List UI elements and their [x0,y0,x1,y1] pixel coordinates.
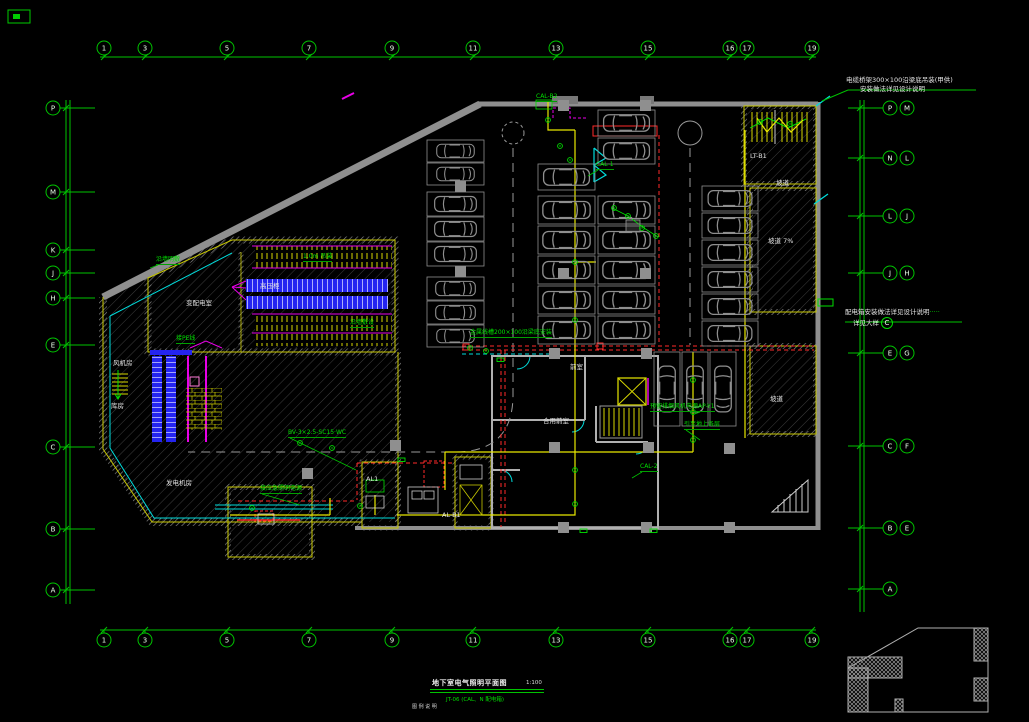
svg-text:13: 13 [552,45,561,53]
structural-column [455,266,466,277]
parking-stall [427,192,484,216]
svg-text:N: N [887,155,892,163]
parking-stall [427,301,484,324]
car-icon [604,115,650,132]
parking-stall [427,140,484,162]
grid-bubble-top: 1 [97,41,111,55]
grid-bubble-bottom: 16 [723,633,737,647]
parking-stall [427,277,484,300]
annotation-line: 安装做法详见设计说明 [860,85,925,93]
svg-text:K: K [51,247,56,255]
car-icon [603,321,650,338]
structural-column [549,348,560,359]
grid-bubble-top: 17 [740,41,754,55]
svg-text:J: J [51,270,54,278]
grid-bubble-right: C [883,439,897,453]
car-icon [435,222,477,237]
structural-column [643,442,654,453]
parking-stall [598,138,655,164]
svg-text:5: 5 [225,637,229,645]
svg-text:J: J [905,213,908,221]
grid-bubble-bottom: 1 [97,633,111,647]
svg-text:M: M [50,189,56,197]
title-sub: 图 例 说 明 [412,703,437,710]
parking-stall [710,352,736,426]
leader-line [632,472,642,478]
grid-bubble-bottom: 7 [302,633,316,647]
car-icon [543,321,590,338]
car-icon [436,305,476,319]
grid-bubble-left: C [46,440,60,454]
floor-plan-svg: 1357911131516171913579111315161719PMKJHE… [0,0,1029,722]
svg-text:B: B [888,525,893,533]
car-icon [543,291,590,308]
svg-text:H: H [904,270,909,278]
car-icon [435,197,477,212]
grid-bubble-top: 7 [302,41,316,55]
svg-text:A: A [888,586,893,594]
svg-text:11: 11 [469,637,478,645]
parking-stall [538,164,595,190]
svg-text:16: 16 [726,637,735,645]
structural-column [558,522,569,533]
grid-bubble-top: 3 [138,41,152,55]
svg-text:L: L [888,213,892,221]
grid-bubble-right: J [883,266,897,280]
structural-column [641,348,652,359]
svg-text:J: J [888,270,891,278]
grid-bubble-bottom: 17 [740,633,754,647]
key-plan [848,628,988,712]
parking-stall [682,352,708,426]
annotation-top-right: 电缆桥架300×100沿梁底吊装(甲供) 安装做法详见设计说明 [846,76,1021,94]
parking-stall [702,321,758,346]
car-icon [437,167,475,181]
grid-bubble-left: A [46,583,60,597]
car-icon [659,366,676,412]
parking-stall [427,217,484,241]
grid-bubble-right: E [883,346,897,360]
car-icon [603,201,650,218]
svg-text:13: 13 [552,637,561,645]
svg-text:G: G [904,350,909,358]
grid-bubble-right: M [900,101,914,115]
svg-text:15: 15 [644,637,653,645]
svg-text:9: 9 [390,637,394,645]
parking-stall [598,286,655,314]
svg-text:19: 19 [808,45,817,53]
grid-bubble-left: K [46,243,60,257]
car-icon [436,281,476,295]
structural-column [724,522,735,533]
structural-column [302,468,313,479]
svg-text:16: 16 [726,45,735,53]
grid-bubble-top: 16 [723,41,737,55]
parking-stall [538,316,595,344]
svg-text:P: P [888,105,892,113]
car-icon [437,329,475,343]
svg-text:9: 9 [390,45,394,53]
grid-bubble-right: P [883,101,897,115]
title-note: JT-06 (CAL、N 配电箱) [446,695,504,703]
annotation-line: 配电箱安装做法详见设计说明 [845,308,930,316]
svg-text:M: M [904,105,910,113]
svg-text:5: 5 [225,45,229,53]
grid-bubble-left: J [46,266,60,280]
svg-text:B: B [51,526,56,534]
parking-stall [427,325,484,347]
grid-bubble-right: N [883,151,897,165]
grid-bubble-right: L [883,209,897,223]
structural-column [640,100,651,111]
car-icon [435,247,477,262]
structural-column [640,268,651,279]
grid-bubble-top: 19 [805,41,819,55]
parking-stall [427,242,484,266]
grid-bubble-right: B [883,521,897,535]
svg-text:E: E [51,342,55,350]
grid-bubble-top: 15 [641,41,655,55]
grid-bubble-left: B [46,522,60,536]
grid-bubble-left: P [46,101,60,115]
parking-stall [598,110,655,136]
cad-drawing-canvas[interactable]: 1357911131516171913579111315161719PMKJHE… [0,0,1029,722]
svg-text:3: 3 [143,45,147,53]
structural-column [558,100,569,111]
annotation-mid-right: 配电箱安装做法详见设计说明····· 详见大样C [845,308,1005,329]
grid-bubble-bottom: 9 [385,633,399,647]
grid-bubble-bottom: 15 [641,633,655,647]
grid-bubble-right: G [900,346,914,360]
structural-column [455,181,466,192]
title-underline [430,692,544,693]
structural-column [558,268,569,279]
drawing-scale: 1:100 [526,680,542,686]
light-fixture-icon [568,158,573,163]
car-icon [543,201,590,218]
structural-column [724,443,735,454]
parking-stall [598,316,655,344]
svg-text:17: 17 [743,637,752,645]
hatch-areas [103,108,816,557]
parking-stall [538,226,595,254]
parking-layer [427,110,758,426]
svg-text:E: E [905,525,909,533]
svg-text:1: 1 [102,637,106,645]
grid-bubble-left: H [46,291,60,305]
car-icon [437,144,475,158]
car-icon [544,169,590,186]
svg-text:P: P [51,105,55,113]
detail-ref-bubble: C [881,317,893,329]
svg-text:C: C [51,444,56,452]
svg-text:7: 7 [307,637,311,645]
svg-text:H: H [50,295,55,303]
car-icon [604,143,650,160]
car-icon [687,366,704,412]
light-fixture-icon [654,234,659,239]
svg-text:3: 3 [143,637,147,645]
car-icon [603,291,650,308]
grid-bubble-right: L [900,151,914,165]
car-icon [715,366,732,412]
grid-bubble-top: 13 [549,41,563,55]
grid-bubble-right: A [883,582,897,596]
grid-bubble-top: 11 [466,41,480,55]
grid-bubble-right: E [900,521,914,535]
grid-bubble-bottom: 11 [466,633,480,647]
grid-bubble-right: F [900,439,914,453]
ramp-bottom-right [772,480,808,512]
elevator [618,378,648,405]
grid-bubble-left: M [46,185,60,199]
structural-column [549,442,560,453]
svg-text:A: A [51,587,56,595]
grid-bubble-bottom: 19 [805,633,819,647]
drawing-title: 地下室电气照明平面图 [432,678,507,688]
parking-stall [538,286,595,314]
grid-bubble-bottom: 13 [549,633,563,647]
light-fixture-icon [484,349,489,354]
annotation-line: 详见大样 [853,319,879,327]
grid-bubble-top: 9 [385,41,399,55]
svg-text:7: 7 [307,45,311,53]
car-icon [603,231,650,248]
car-icon [543,231,590,248]
svg-text:19: 19 [808,637,817,645]
grid-bubble-bottom: 5 [220,633,234,647]
parking-stall [538,196,595,224]
grid-bubble-top: 5 [220,41,234,55]
structural-column [390,440,401,451]
dots: ····· [930,308,940,316]
svg-text:C: C [888,443,893,451]
title-underline [430,689,544,690]
stair-core [600,406,642,438]
svg-text:L: L [905,155,909,163]
grid-bubble-bottom: 3 [138,633,152,647]
svg-text:F: F [905,443,909,451]
grid-bubble-right: J [900,209,914,223]
svg-text:15: 15 [644,45,653,53]
svg-text:1: 1 [102,45,106,53]
grid-bubble-left: E [46,338,60,352]
light-fixture-icon [558,144,563,149]
svg-text:E: E [888,350,892,358]
annotation-line: 电缆桥架300×100沿梁底吊装(甲供) [846,76,953,84]
svg-text:11: 11 [469,45,478,53]
grid-bubble-right: H [900,266,914,280]
svg-text:17: 17 [743,45,752,53]
